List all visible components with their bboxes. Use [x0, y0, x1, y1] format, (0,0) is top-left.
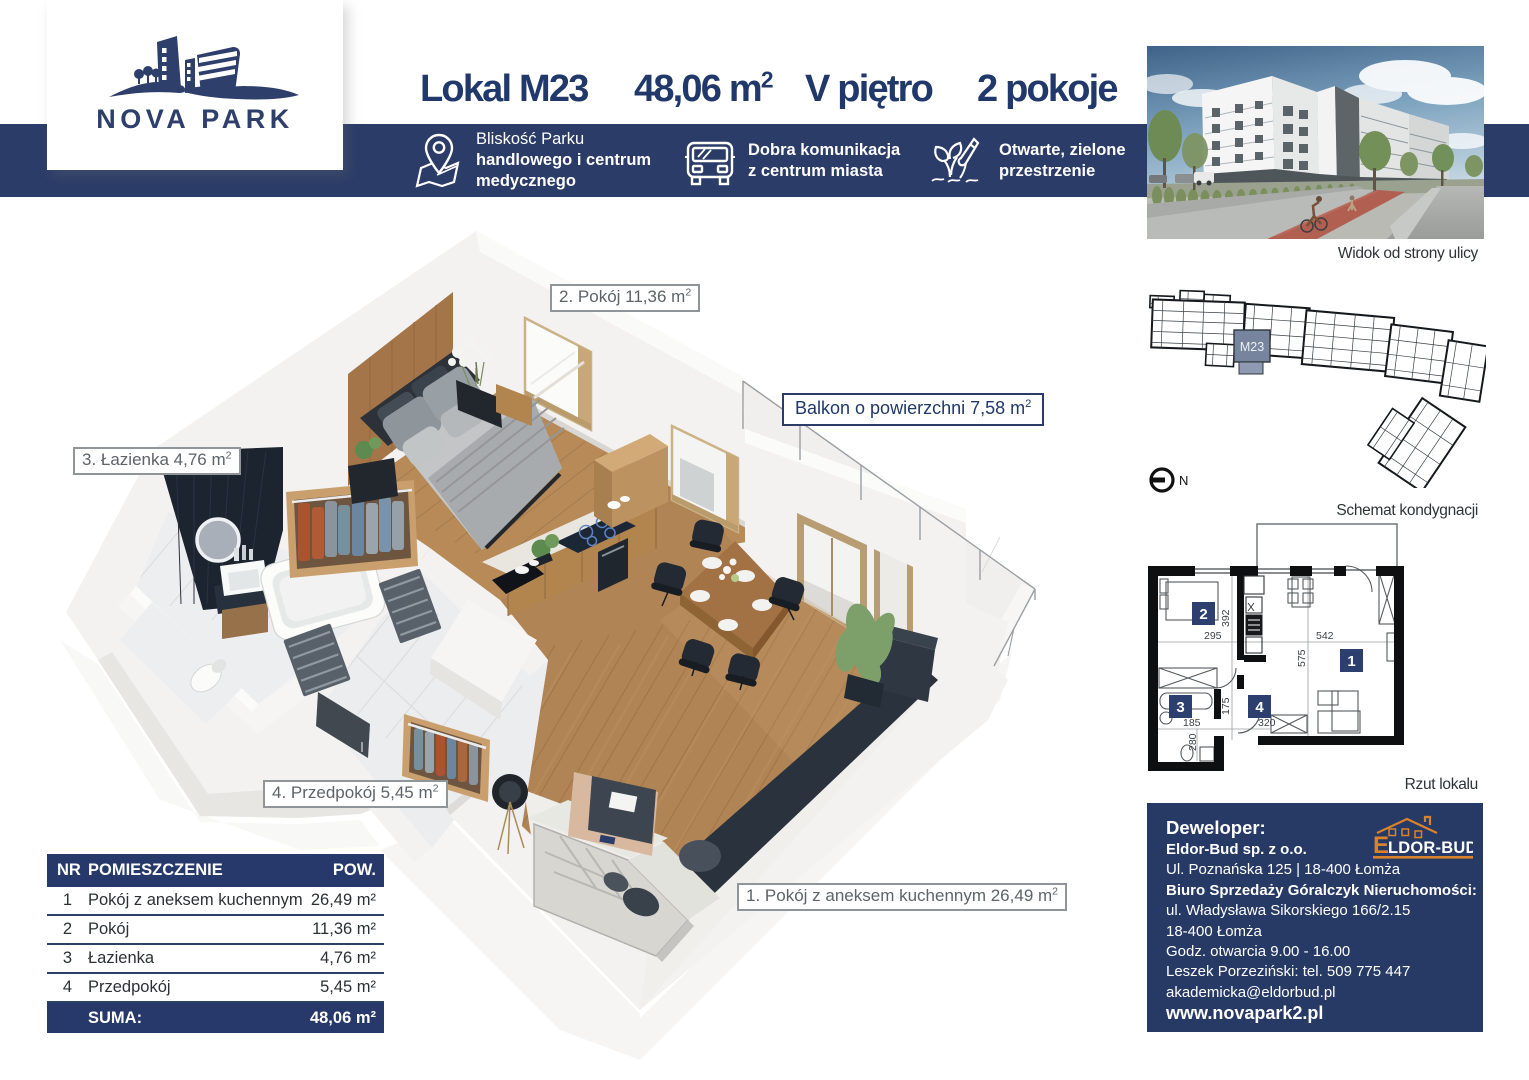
svg-text:NOVA PARK: NOVA PARK [96, 104, 294, 134]
